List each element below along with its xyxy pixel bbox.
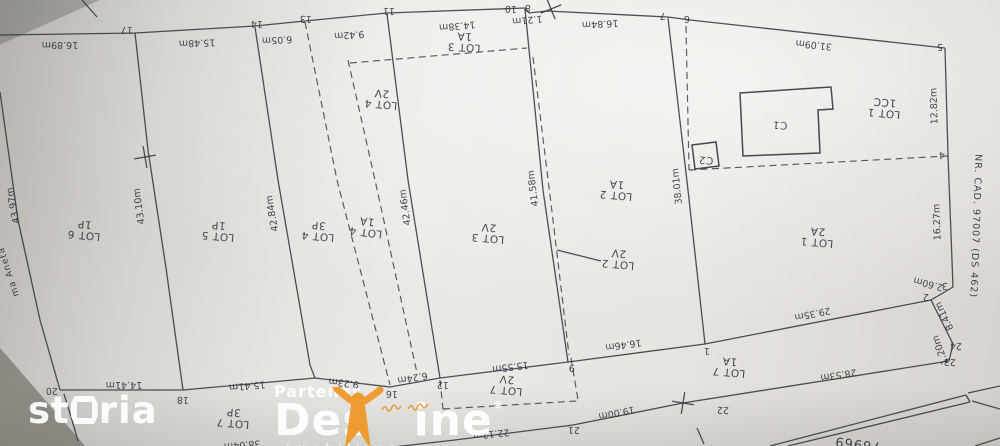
boundary-line: [966, 395, 970, 402]
point-number: 13: [300, 13, 312, 24]
destine-brand-name: Desine®: [274, 401, 504, 441]
point-number: 4: [939, 149, 945, 160]
destine-person-icon: [332, 387, 384, 446]
boundary-line: [387, 14, 440, 378]
parcel-division-dashed-line: [350, 48, 527, 63]
measurement-label: 19.00m: [598, 404, 636, 422]
measurement-label: 38.01m: [670, 168, 685, 205]
measurement-label: 16.89m: [42, 39, 78, 50]
point-number: 6: [684, 13, 690, 24]
lot-label: LOT 32V: [471, 220, 506, 246]
lot-label: LOT 41A: [348, 213, 384, 240]
boundary-line: [557, 250, 601, 261]
boundary-line: [82, 0, 97, 17]
lot-label: LOT 61P: [67, 217, 102, 243]
lot-label: LOT 12A: [800, 224, 835, 250]
measurement-label: 6.05m: [262, 33, 293, 46]
point-number: 24: [950, 340, 962, 351]
boundary-line: [975, 438, 1000, 446]
boundary-line: [968, 386, 1000, 393]
point-number: 17: [121, 24, 133, 35]
neighbor-owner-label: ma Aneta: [0, 246, 22, 298]
storia-watermark-logo: stria: [28, 392, 158, 429]
lot-name: LOT 11CC: [867, 95, 902, 121]
point-number: 10: [505, 3, 517, 14]
measurement-label: 16.46m: [605, 336, 643, 352]
lot-name: LOT 43P: [301, 218, 336, 244]
measurement-label: 42.46m: [398, 189, 414, 227]
lot-label: LOT 31A: [447, 29, 481, 54]
survey-plan-photo: C1C2171413111087654322423222120181612911…: [0, 0, 1000, 446]
lot-name: LOT 51P: [201, 218, 236, 244]
lot-name: LOT 61P: [67, 217, 102, 243]
point-number: 14: [251, 18, 263, 29]
point-number: 1: [704, 345, 710, 356]
measurement-label: 15.55m: [492, 359, 530, 374]
measurement-label: 8.41m: [933, 300, 956, 332]
measurement-label: 12.82m: [928, 88, 940, 125]
point-number: 18: [177, 394, 189, 405]
lot-label: LOT 51P: [201, 218, 236, 244]
measurement-label: 42.84m: [264, 195, 281, 233]
measurement-label: 41.58m: [526, 170, 541, 208]
boundary-line: [972, 401, 1000, 409]
parcel-division-dashed-line: [686, 26, 689, 170]
measurement-label: 9.42m: [334, 28, 365, 41]
measurement-label: 16.84m: [582, 17, 619, 30]
parcel-division-dashed-line: [689, 156, 948, 170]
storia-text-left: st: [28, 389, 70, 432]
measurement-label: 28.53m: [820, 366, 858, 383]
lot-name: LOT 42V: [364, 86, 399, 112]
point-number: 8: [525, 2, 531, 13]
cadastral-plan-drawing: C1C2171413111087654322423222120181612911…: [0, 0, 1000, 446]
destine-script-slogan-icon: [380, 401, 440, 415]
measurement-label: 31.09m: [795, 37, 832, 52]
point-number: 5: [937, 41, 943, 52]
building-label: C1: [772, 118, 788, 130]
lot-label: LOT 22V: [601, 246, 636, 272]
measurement-label: 15.48m: [179, 36, 216, 48]
registered-trademark-icon: ®: [493, 401, 504, 410]
lot-name: LOT 41A: [348, 213, 384, 240]
measurement-label: 16.27m: [931, 204, 943, 241]
point-number: 11: [383, 5, 395, 16]
measurement-label: 15.41m: [229, 378, 266, 392]
lot-label: LOT 43P: [301, 218, 336, 244]
measurement-label: 43.10m: [132, 188, 148, 226]
point-number: 9: [569, 362, 575, 373]
lot-name: LOT 12A: [800, 224, 835, 250]
road-number-label: 76969: [834, 433, 882, 446]
point-number: 7: [660, 10, 666, 21]
measurement-label: 38.04m: [224, 437, 261, 446]
boundary-line: [697, 428, 704, 444]
point-number: 21: [568, 424, 580, 435]
survey-cross-mark: [132, 144, 157, 169]
storia-hexagon-o-icon: [71, 396, 98, 424]
lot-name: LOT 21A: [599, 177, 634, 203]
boundary-line: [255, 27, 315, 378]
point-number: 22: [717, 404, 729, 415]
destine-watermark-logo: Partener Desine® imobiliare: [274, 382, 504, 446]
road-cadastral-label: NR. CAD. 97007 (DS 462): [967, 154, 983, 298]
lot-name: LOT 73P: [216, 405, 251, 431]
lot-name: LOT 22V: [601, 246, 636, 272]
building-label: C2: [698, 153, 714, 165]
measurement-label: 1.20m: [930, 334, 951, 366]
lot-label: LOT 73P: [216, 405, 251, 431]
lot-name: LOT 31A: [447, 29, 481, 54]
lot-label: LOT 42V: [364, 86, 399, 112]
lot-label: LOT 11CC: [867, 95, 902, 121]
storia-text-right: ria: [99, 389, 158, 432]
measurement-label: 29.35m: [794, 305, 832, 323]
destine-imobiliare-label: imobiliare: [286, 442, 504, 446]
measurement-label: 2.60m: [912, 274, 944, 292]
boundary-line: [0, 92, 60, 390]
point-number: 2: [923, 291, 929, 302]
survey-cross-mark: [670, 390, 695, 415]
parcel-division-dashed-line: [305, 22, 390, 385]
measurement-label: 43.97m: [5, 187, 23, 225]
lot-label: LOT 21A: [599, 177, 634, 203]
lot-name: LOT 71A: [712, 354, 747, 380]
lot-name: LOT 32V: [471, 220, 506, 246]
lot-label: LOT 71A: [712, 354, 747, 380]
